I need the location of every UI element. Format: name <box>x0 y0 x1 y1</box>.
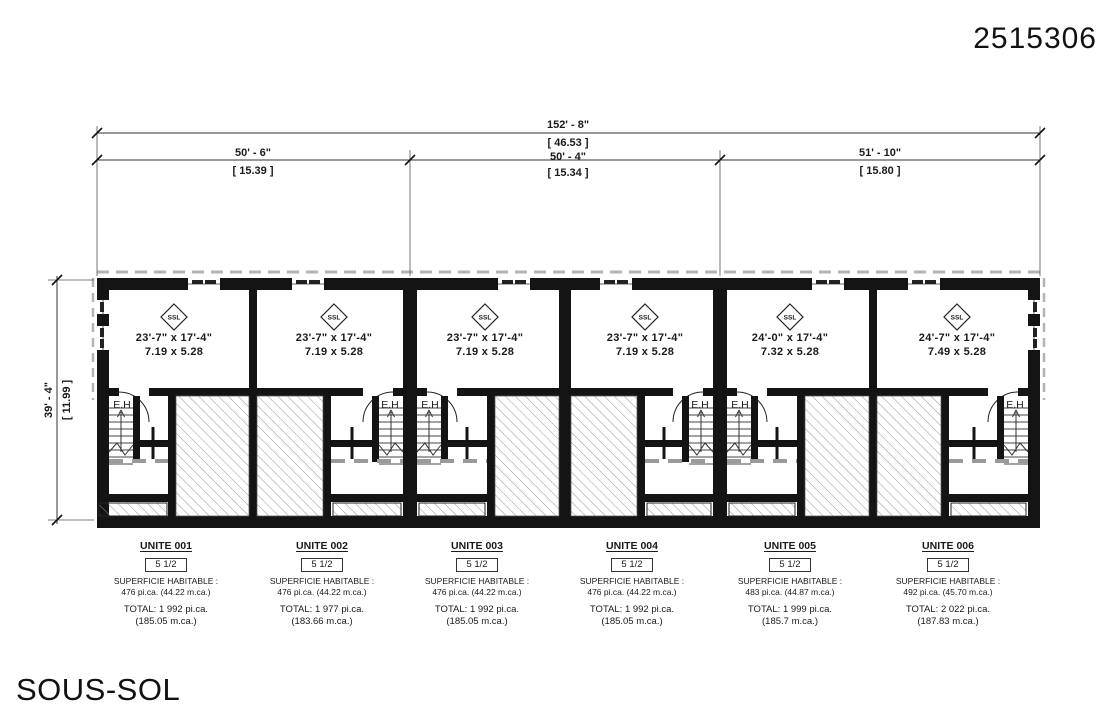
room-size-metric: 7.49 x 5.28 <box>928 346 986 358</box>
stair-eh-label: E.H <box>1006 399 1024 411</box>
party-wall-5-6 <box>869 290 877 516</box>
unit-info-003: UNITE 003 5 1/2 SUPERFICIE HABITABLE : 4… <box>402 540 552 628</box>
window-icon <box>97 300 109 314</box>
superficie-value: 492 pi.ca. (45.70 m.ca.) <box>873 587 1023 598</box>
unit-info-006: UNITE 006 5 1/2 SUPERFICIE HABITABLE : 4… <box>873 540 1023 628</box>
unit-004-interior: E.H <box>571 388 713 516</box>
total-metric: (185.05 m.ca.) <box>402 616 552 628</box>
stair-eh-label: E.H <box>421 399 439 411</box>
unit-name: UNITE 005 <box>715 540 865 553</box>
total-value: TOTAL: 1 992 pi.ca. <box>557 604 707 616</box>
unexcavated-hatch <box>495 396 559 516</box>
crawlspace-hatch <box>419 503 485 516</box>
room-label: SSL 23'-7" x 17'-4" 7.19 x 5.28 <box>136 304 212 358</box>
superficie-label: SUPERFICIE HABITABLE : <box>715 576 865 587</box>
superficie-label: SUPERFICIE HABITABLE : <box>557 576 707 587</box>
unexcavated-hatch <box>877 396 941 516</box>
total-value: TOTAL: 2 022 pi.ca. <box>873 604 1023 616</box>
unexcavated-hatch <box>805 396 869 516</box>
window-icon <box>97 326 109 350</box>
unit-info-001: UNITE 001 5 1/2 SUPERFICIE HABITABLE : 4… <box>91 540 241 628</box>
crawlspace-hatch <box>729 503 795 516</box>
svg-text:SSL: SSL <box>168 315 181 322</box>
svg-text:SSL: SSL <box>328 315 341 322</box>
party-wall-3-4 <box>559 290 571 516</box>
dim-seg1-imperial: 50' - 6" <box>235 147 271 159</box>
svg-text:SSL: SSL <box>784 315 797 322</box>
unit-005-interior: E.H <box>727 388 869 516</box>
total-metric: (185.7 m.ca.) <box>715 616 865 628</box>
total-metric: (185.05 m.ca.) <box>557 616 707 628</box>
superficie-label: SUPERFICIE HABITABLE : <box>91 576 241 587</box>
unit-type-badge: 5 1/2 <box>769 558 810 572</box>
stair-eh-label: E.H <box>113 399 131 411</box>
window-icon <box>498 278 530 290</box>
unit-001-interior: E.H <box>97 388 249 516</box>
superficie-value: 476 pi.ca. (44.22 m.ca.) <box>91 587 241 598</box>
room-size-metric: 7.19 x 5.28 <box>456 346 514 358</box>
unit-type-badge: 5 1/2 <box>301 558 342 572</box>
room-size-imperial: 24'-7" x 17'-4" <box>919 332 995 344</box>
unit-002-interior: E.H <box>257 388 403 516</box>
party-wall-1-2 <box>249 290 257 516</box>
dim-seg2-imperial: 50' - 4" <box>550 151 586 163</box>
room-size-metric: 7.19 x 5.28 <box>305 346 363 358</box>
svg-text:SSL: SSL <box>951 315 964 322</box>
dim-depth-metric: [ 11.99 ] <box>61 379 73 420</box>
dim-seg1-metric: [ 15.39 ] <box>233 165 274 177</box>
unit-info-005: UNITE 005 5 1/2 SUPERFICIE HABITABLE : 4… <box>715 540 865 628</box>
unit-006-interior: E.H <box>877 388 1028 516</box>
unit-info-002: UNITE 002 5 1/2 SUPERFICIE HABITABLE : 4… <box>247 540 397 628</box>
dim-overall-imperial: 152' - 8" <box>547 119 589 131</box>
total-metric: (187.83 m.ca.) <box>873 616 1023 628</box>
total-metric: (183.66 m.ca.) <box>247 616 397 628</box>
window-icon <box>1028 326 1040 350</box>
crawlspace-hatch <box>951 503 1026 516</box>
unit-name: UNITE 004 <box>557 540 707 553</box>
room-size-metric: 7.19 x 5.28 <box>145 346 203 358</box>
superficie-value: 476 pi.ca. (44.22 m.ca.) <box>557 587 707 598</box>
room-label: SSL 23'-7" x 17'-4" 7.19 x 5.28 <box>447 304 523 358</box>
room-size-imperial: 24'-0" x 17'-4" <box>752 332 828 344</box>
unit-name: UNITE 003 <box>402 540 552 553</box>
unit-003-interior: E.H <box>417 388 559 516</box>
total-value: TOTAL: 1 999 pi.ca. <box>715 604 865 616</box>
superficie-value: 476 pi.ca. (44.22 m.ca.) <box>402 587 552 598</box>
superficie-label: SUPERFICIE HABITABLE : <box>873 576 1023 587</box>
window-icon <box>188 278 220 290</box>
room-size-imperial: 23'-7" x 17'-4" <box>296 332 372 344</box>
dim-seg3-metric: [ 15.80 ] <box>860 165 901 177</box>
superficie-value: 476 pi.ca. (44.22 m.ca.) <box>247 587 397 598</box>
stair-eh-label: E.H <box>381 399 399 411</box>
party-wall-4-5 <box>713 290 727 516</box>
unexcavated-hatch <box>257 396 323 516</box>
room-label: SSL 24'-7" x 17'-4" 7.49 x 5.28 <box>919 304 995 358</box>
unit-type-badge: 5 1/2 <box>611 558 652 572</box>
unit-name: UNITE 006 <box>873 540 1023 553</box>
superficie-value: 483 pi.ca. (44.87 m.ca.) <box>715 587 865 598</box>
dim-depth-imperial: 39' - 4" <box>43 382 55 418</box>
window-icon <box>600 278 632 290</box>
room-size-metric: 7.32 x 5.28 <box>761 346 819 358</box>
crawlspace-hatch <box>647 503 711 516</box>
window-icon <box>292 278 324 290</box>
room-label: SSL 23'-7" x 17'-4" 7.19 x 5.28 <box>296 304 372 358</box>
unit-type-badge: 5 1/2 <box>456 558 497 572</box>
stair-eh-label: E.H <box>691 399 709 411</box>
window-icon <box>1028 300 1040 314</box>
room-label: SSL 23'-7" x 17'-4" 7.19 x 5.28 <box>607 304 683 358</box>
unexcavated-hatch <box>176 396 249 516</box>
total-value: TOTAL: 1 992 pi.ca. <box>91 604 241 616</box>
superficie-label: SUPERFICIE HABITABLE : <box>247 576 397 587</box>
room-size-metric: 7.19 x 5.28 <box>616 346 674 358</box>
unit-info-004: UNITE 004 5 1/2 SUPERFICIE HABITABLE : 4… <box>557 540 707 628</box>
unit-name: UNITE 001 <box>91 540 241 553</box>
room-label: SSL 24'-0" x 17'-4" 7.32 x 5.28 <box>752 304 828 358</box>
room-size-imperial: 23'-7" x 17'-4" <box>447 332 523 344</box>
svg-text:SSL: SSL <box>479 315 492 322</box>
window-icon <box>812 278 844 290</box>
drawing-sheet: 2515306 SOUS-SOL <box>0 0 1113 720</box>
dim-seg2-metric: [ 15.34 ] <box>548 167 589 179</box>
total-value: TOTAL: 1 992 pi.ca. <box>402 604 552 616</box>
superficie-label: SUPERFICIE HABITABLE : <box>402 576 552 587</box>
room-size-imperial: 23'-7" x 17'-4" <box>136 332 212 344</box>
dim-seg3-imperial: 51' - 10" <box>859 147 901 159</box>
stair-eh-label: E.H <box>731 399 749 411</box>
crawlspace-hatch <box>99 503 167 516</box>
dim-overall-metric: [ 46.53 ] <box>548 137 589 149</box>
crawlspace-hatch <box>333 503 401 516</box>
total-metric: (185.05 m.ca.) <box>91 616 241 628</box>
unexcavated-hatch <box>571 396 637 516</box>
unit-type-badge: 5 1/2 <box>927 558 968 572</box>
unit-name: UNITE 002 <box>247 540 397 553</box>
unit-type-badge: 5 1/2 <box>145 558 186 572</box>
total-value: TOTAL: 1 977 pi.ca. <box>247 604 397 616</box>
party-wall-2-3 <box>403 290 417 516</box>
svg-text:SSL: SSL <box>639 315 652 322</box>
window-icon <box>908 278 940 290</box>
room-size-imperial: 23'-7" x 17'-4" <box>607 332 683 344</box>
